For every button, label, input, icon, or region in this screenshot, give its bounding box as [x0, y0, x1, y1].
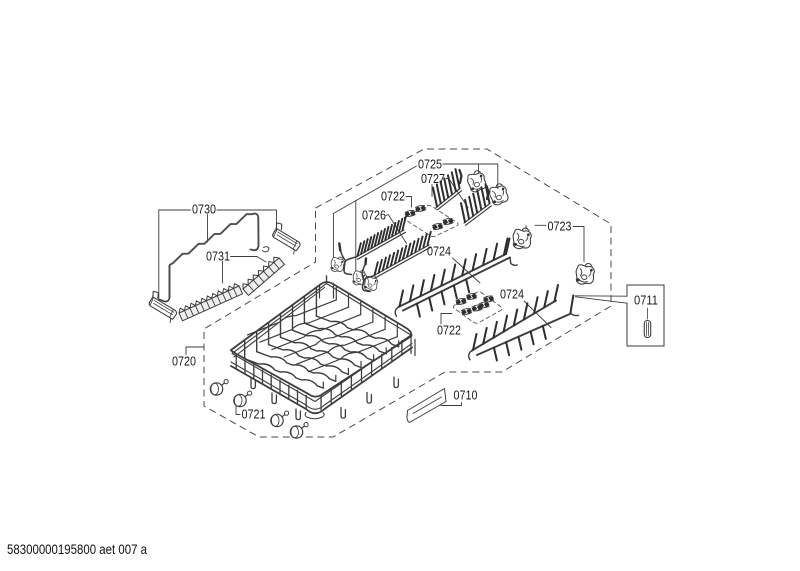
- svg-text:0721: 0721: [242, 408, 266, 422]
- svg-text:0725: 0725: [418, 158, 442, 172]
- svg-text:0724: 0724: [427, 245, 451, 259]
- svg-text:0711: 0711: [634, 294, 658, 308]
- svg-text:0720: 0720: [172, 355, 196, 369]
- svg-text:0710: 0710: [454, 389, 478, 403]
- svg-text:0722: 0722: [381, 190, 405, 204]
- svg-text:0726: 0726: [362, 209, 386, 223]
- svg-text:0722: 0722: [437, 324, 461, 338]
- svg-text:0730: 0730: [192, 203, 216, 217]
- svg-text:0724: 0724: [500, 288, 524, 302]
- svg-text:0731: 0731: [206, 250, 230, 264]
- svg-text:0723: 0723: [548, 220, 572, 234]
- svg-text:58300000195800 aet 007 a: 58300000195800 aet 007 a: [7, 541, 147, 557]
